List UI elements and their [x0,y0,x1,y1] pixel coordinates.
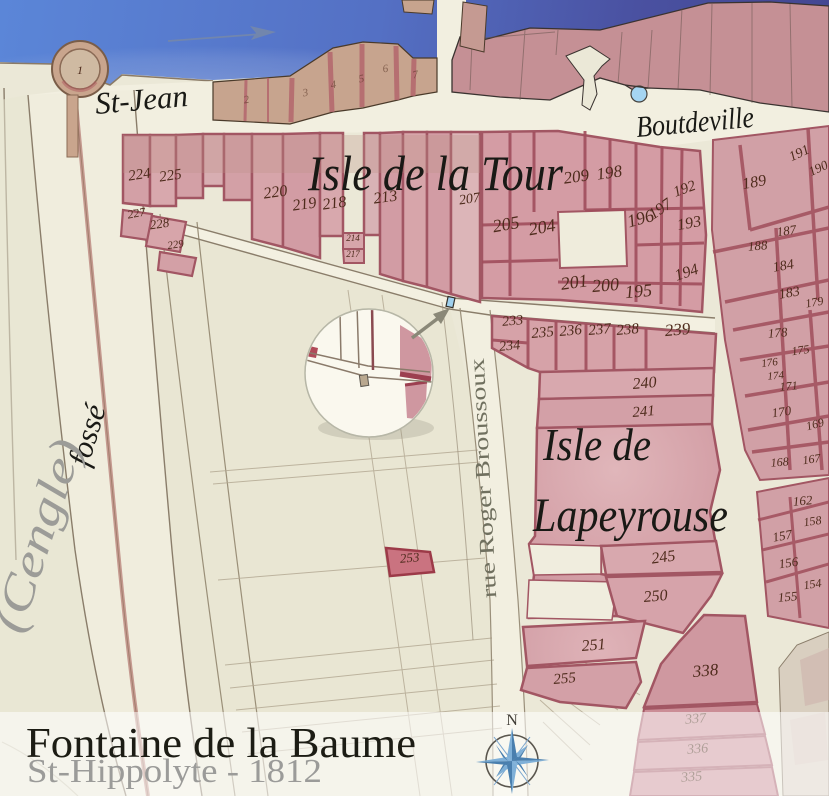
svg-text:Lapeyrouse: Lapeyrouse [532,489,728,542]
svg-text:156: 156 [778,554,800,572]
svg-text:245: 245 [650,547,676,567]
svg-text:214: 214 [346,233,360,243]
svg-text:253: 253 [399,549,420,566]
svg-text:162: 162 [792,492,813,509]
svg-text:238: 238 [616,321,640,339]
svg-text:158: 158 [803,513,823,529]
svg-text:188: 188 [747,237,768,254]
svg-text:236: 236 [559,322,583,340]
svg-text:Isle de: Isle de [542,419,651,470]
svg-text:155: 155 [777,588,798,605]
svg-text:234: 234 [499,338,521,355]
svg-text:154: 154 [803,576,823,592]
svg-text:198: 198 [595,161,623,183]
svg-text:195: 195 [624,280,653,302]
svg-text:167: 167 [802,451,823,468]
svg-text:229: 229 [167,238,186,252]
svg-text:251: 251 [581,636,606,655]
svg-text:209: 209 [562,165,590,187]
svg-text:Isle de la Tour: Isle de la Tour [307,145,563,201]
svg-text:168: 168 [770,454,789,470]
svg-text:228: 228 [149,215,171,233]
svg-text:N: N [506,712,518,729]
svg-text:171: 171 [779,378,798,394]
svg-text:201: 201 [559,270,589,294]
svg-text:170: 170 [771,403,793,421]
svg-text:240: 240 [632,374,657,393]
svg-text:St-Hippolyte - 1812: St-Hippolyte - 1812 [27,753,322,790]
svg-text:250: 250 [643,587,668,606]
svg-text:200: 200 [591,274,620,296]
svg-text:239: 239 [664,319,692,340]
svg-text:1: 1 [77,63,83,77]
svg-text:176: 176 [761,356,780,370]
svg-text:237: 237 [588,321,613,339]
svg-text:175: 175 [791,342,811,358]
svg-text:178: 178 [767,324,788,341]
svg-text:225: 225 [158,166,183,185]
svg-text:217: 217 [346,249,360,259]
svg-text:187: 187 [776,222,798,240]
svg-text:255: 255 [553,670,577,688]
svg-text:338: 338 [691,660,720,681]
svg-text:220: 220 [262,182,288,202]
svg-text:233: 233 [502,313,524,330]
svg-text:224: 224 [127,165,152,184]
svg-text:235: 235 [531,324,555,342]
